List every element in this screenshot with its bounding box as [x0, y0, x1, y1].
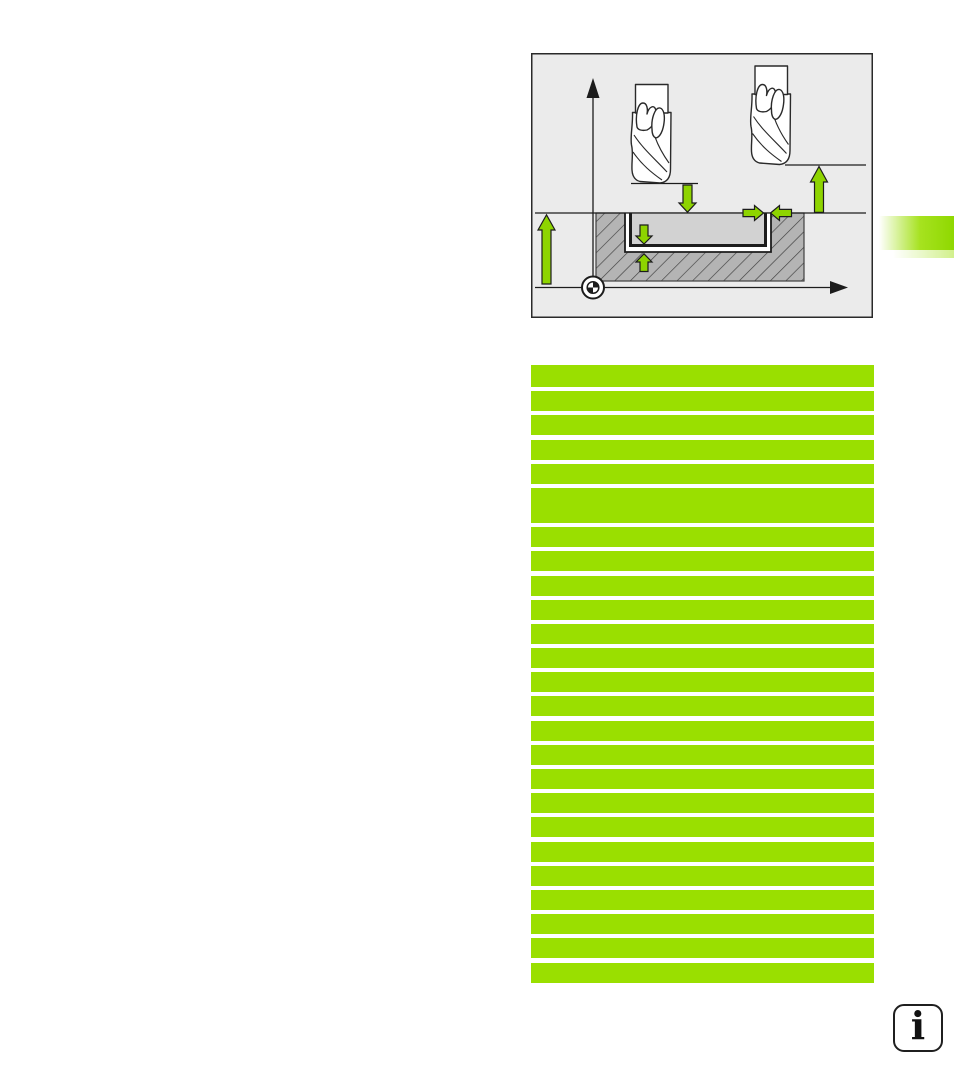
end-mill-right: [751, 66, 791, 165]
program-line-highlight: [531, 488, 874, 523]
chapter-tab-gradient: [879, 216, 954, 250]
program-line-highlight: [531, 391, 874, 411]
program-line-highlight: [531, 866, 874, 886]
program-line-highlight: [531, 600, 874, 620]
program-line-highlight: [531, 793, 874, 813]
manual-page: i: [0, 0, 954, 1090]
program-line-highlight: [531, 415, 874, 435]
pocket-milling-diagram: [531, 53, 873, 318]
program-line-highlight: [531, 624, 874, 644]
program-line-highlight: [531, 648, 874, 668]
program-line-highlight: [531, 365, 874, 387]
info-icon: i: [893, 1004, 943, 1052]
program-line-highlight: [531, 963, 874, 983]
program-line-highlight: [531, 914, 874, 934]
program-line-highlight: [531, 721, 874, 741]
program-line-highlight: [531, 440, 874, 460]
chapter-tab-shadow: [893, 250, 954, 258]
program-line-highlight: [531, 527, 874, 547]
info-icon-glyph: i: [911, 1007, 925, 1045]
program-line-highlight: [531, 696, 874, 716]
program-line-highlight: [531, 745, 874, 765]
program-line-highlight: [531, 842, 874, 862]
program-line-highlight: [531, 938, 874, 958]
program-line-highlight: [531, 464, 874, 484]
program-line-highlight: [531, 551, 874, 571]
nc-program-listing: [531, 365, 874, 983]
program-line-highlight: [531, 769, 874, 789]
program-line-highlight: [531, 817, 874, 837]
program-line-highlight: [531, 672, 874, 692]
end-mill-left: [631, 85, 671, 184]
program-line-highlight: [531, 890, 874, 910]
datum-symbol: [582, 277, 604, 299]
program-line-highlight: [531, 576, 874, 596]
